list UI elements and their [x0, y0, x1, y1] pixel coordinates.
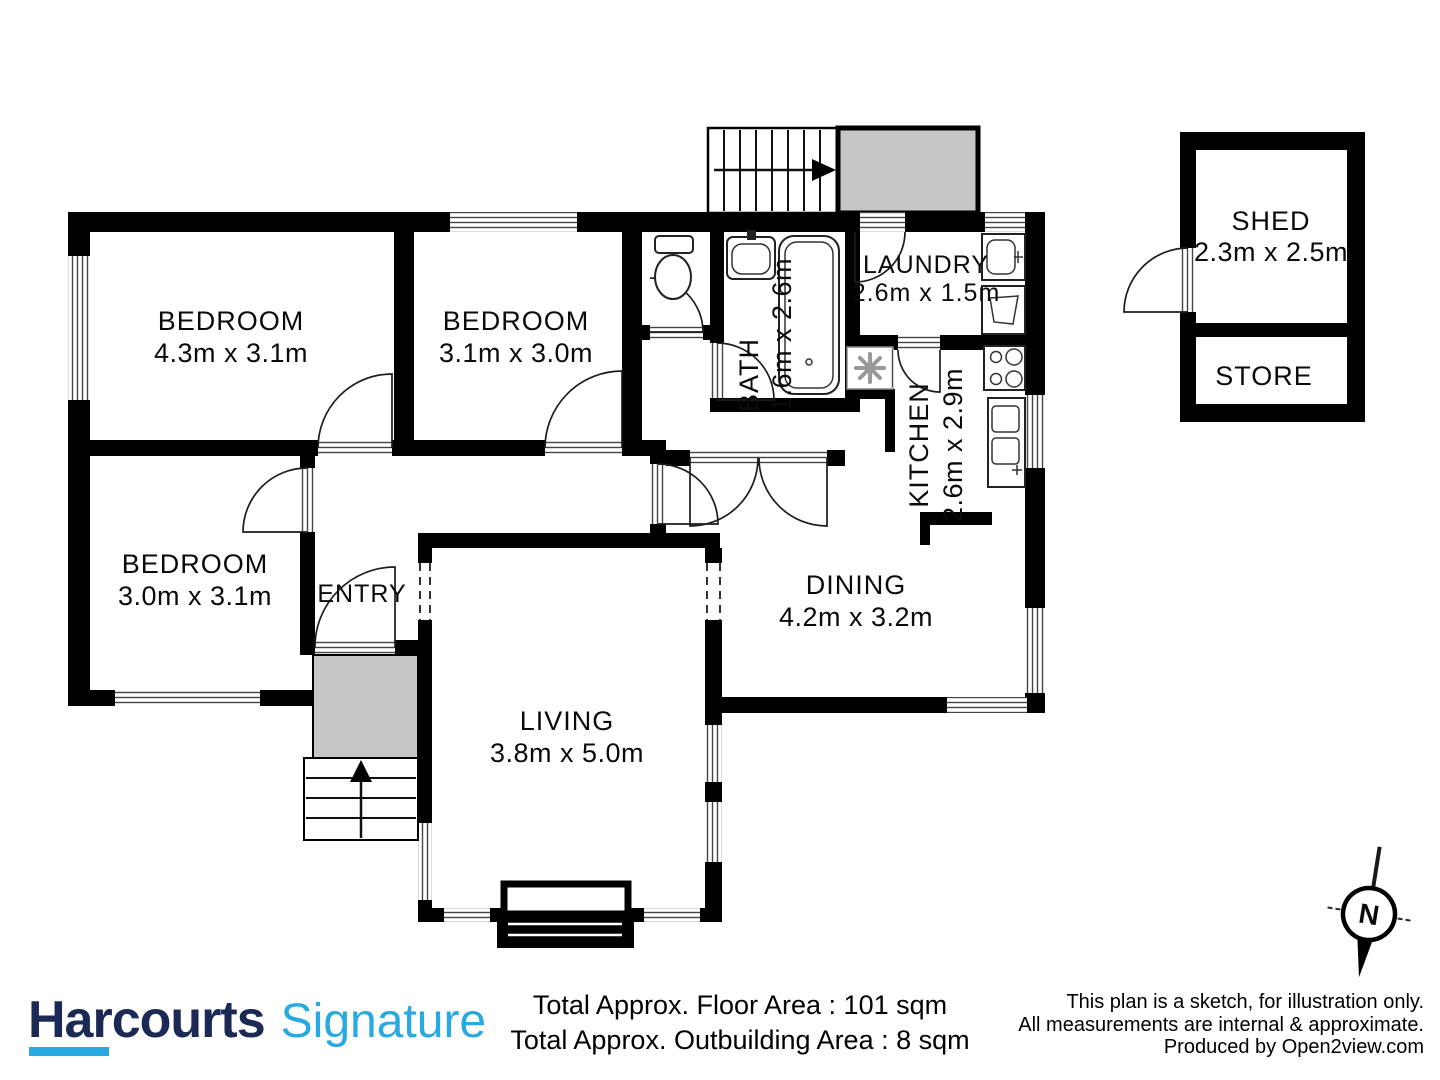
- bedroom1-door-threshold: [318, 440, 392, 456]
- window: [705, 802, 722, 862]
- bath-label: BATH: [734, 338, 764, 412]
- bedroom1-door: [318, 374, 392, 448]
- window: [1025, 395, 1045, 468]
- bedroom1-dims: 4.3m x 3.1m: [154, 338, 308, 368]
- kitchen-label: KITCHEN: [904, 382, 934, 508]
- bedroom3-door-threshold: [300, 468, 315, 532]
- bedroom2-door: [545, 371, 622, 448]
- outbuilding-area-text: Total Approx. Outbuilding Area : 8 sqm: [420, 1023, 1060, 1058]
- disclaimer-line3: Produced by Open2view.com: [1004, 1036, 1424, 1059]
- shed-door: [1124, 248, 1188, 312]
- window: [705, 725, 722, 782]
- entry-label: ENTRY: [317, 580, 406, 608]
- bedroom3-door: [243, 468, 307, 532]
- heater-icon: [847, 347, 894, 389]
- kitchen-dims: 2.6m x 2.9m: [938, 368, 968, 522]
- disclaimer-line1: This plan is a sketch, for illustration …: [1004, 991, 1424, 1014]
- window: [450, 212, 577, 232]
- bedroom3-dims: 3.0m x 3.1m: [118, 581, 272, 611]
- bath-dims: 1.6m x 2.6m: [767, 258, 797, 412]
- agency-logo: HarcourtsSignature: [28, 990, 486, 1050]
- area-summary: Total Approx. Floor Area : 101 sqm Total…: [420, 988, 1060, 1058]
- dining-double-door-left: [690, 458, 758, 526]
- shed-label: SHED: [1231, 206, 1310, 236]
- living-label: LIVING: [520, 706, 615, 736]
- brand-primary: Harcourts: [28, 991, 265, 1049]
- bedroom3-label: BEDROOM: [122, 549, 269, 579]
- hall-door: [658, 464, 718, 524]
- landing-porch: [838, 128, 978, 213]
- window: [68, 256, 90, 400]
- store-label: STORE: [1215, 361, 1313, 391]
- stairs-lower: [304, 758, 418, 840]
- floorplan-page: BEDROOM 4.3m x 3.1m BEDROOM 3.1m x 3.0m …: [0, 0, 1440, 1080]
- open-plan-openings: [418, 563, 722, 620]
- disclaimer: This plan is a sketch, for illustration …: [1004, 991, 1424, 1059]
- window: [444, 908, 490, 922]
- dining-dims: 4.2m x 3.2m: [779, 602, 933, 632]
- bath-door-threshold: [710, 343, 724, 400]
- brand-underline: [29, 1047, 109, 1056]
- laundry-top-door-threshold: [855, 212, 905, 232]
- shed-dims: 2.3m x 2.5m: [1194, 237, 1348, 267]
- living-dims: 3.8m x 5.0m: [490, 738, 644, 768]
- laundry-dims: 2.6m x 1.5m: [852, 279, 1001, 307]
- floorplan-drawing: BEDROOM 4.3m x 3.1m BEDROOM 3.1m x 3.0m …: [0, 0, 1440, 980]
- window: [115, 690, 260, 706]
- window: [947, 697, 1027, 713]
- dining-double-door-right: [759, 458, 827, 526]
- bedroom2-label: BEDROOM: [443, 306, 590, 336]
- laundry-label: LAUNDRY: [863, 251, 989, 279]
- stairs-upper: [708, 128, 838, 213]
- bedroom2-dims: 3.1m x 3.0m: [439, 338, 593, 368]
- window: [644, 908, 700, 922]
- floor-area-text: Total Approx. Floor Area : 101 sqm: [420, 988, 1060, 1023]
- compass: N: [1318, 840, 1422, 980]
- entry-porch: [313, 655, 418, 758]
- entry-door-threshold: [315, 640, 395, 655]
- laundry-bottom-door-threshold: [898, 335, 940, 350]
- bedroom1-label: BEDROOM: [158, 306, 305, 336]
- hall-door-threshold: [650, 464, 666, 524]
- toilet-icon: [655, 236, 693, 299]
- bedroom2-door-threshold: [545, 440, 622, 456]
- dining-label: DINING: [806, 570, 907, 600]
- window: [1025, 608, 1045, 693]
- kitchen-sink-icon: [988, 398, 1025, 487]
- window: [418, 823, 432, 900]
- disclaimer-line2: All measurements are internal & approxim…: [1004, 1014, 1424, 1037]
- stove-icon: [984, 346, 1025, 390]
- fireplace: [497, 884, 634, 948]
